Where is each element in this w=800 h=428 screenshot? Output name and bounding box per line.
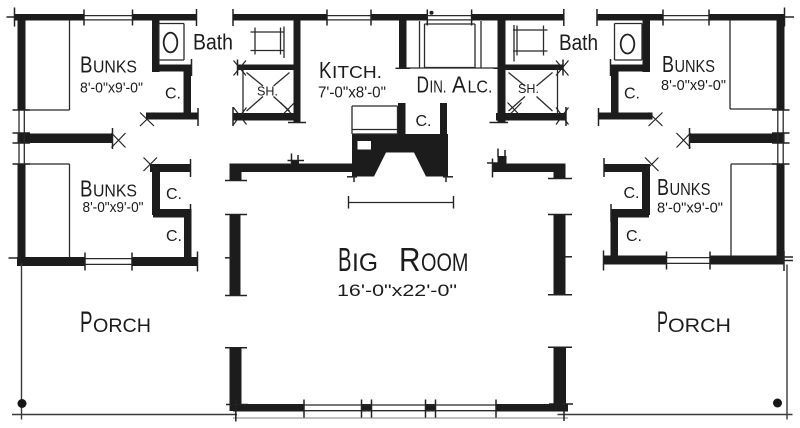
svg-text:ORCH: ORCH <box>93 316 151 337</box>
svg-text:C.: C. <box>416 113 432 130</box>
svg-text:SH.: SH. <box>518 81 539 96</box>
svg-text:B: B <box>662 51 674 77</box>
svg-text:8'-0"x9'-0": 8'-0"x9'-0" <box>83 199 144 216</box>
svg-text:Bath: Bath <box>559 30 598 55</box>
svg-text:C.: C. <box>165 86 181 103</box>
svg-text:B: B <box>80 176 93 202</box>
svg-text:C.: C. <box>626 228 642 245</box>
svg-text:C.: C. <box>166 186 182 203</box>
svg-text:B: B <box>80 52 93 78</box>
svg-text:8'-0"x9'-0": 8'-0"x9'-0" <box>661 77 726 94</box>
svg-text:LC.: LC. <box>468 77 493 97</box>
svg-text:OOM: OOM <box>421 249 469 277</box>
svg-text:D: D <box>417 72 430 98</box>
svg-text:C.: C. <box>624 86 640 103</box>
svg-text:ITCH.: ITCH. <box>332 62 382 82</box>
svg-text:UNKS: UNKS <box>93 57 137 77</box>
svg-text:IG: IG <box>352 249 378 277</box>
svg-text:C.: C. <box>166 228 182 245</box>
svg-text:B: B <box>338 241 352 278</box>
svg-text:UNKS: UNKS <box>93 181 137 201</box>
svg-text:UNKS: UNKS <box>675 56 716 76</box>
svg-text:P: P <box>657 306 668 339</box>
svg-text:IN.: IN. <box>430 77 447 97</box>
svg-text:ORCH: ORCH <box>668 316 731 337</box>
svg-text:K: K <box>319 57 332 83</box>
svg-text:P: P <box>80 306 93 339</box>
svg-text:16'-0"x22'-0": 16'-0"x22'-0" <box>337 281 457 300</box>
svg-text:UNKS: UNKS <box>670 179 711 199</box>
svg-text:A: A <box>452 72 467 98</box>
svg-text:8'-0"x9'-0": 8'-0"x9'-0" <box>80 80 143 97</box>
svg-text:R: R <box>399 241 421 278</box>
svg-text:Bath: Bath <box>193 30 233 55</box>
svg-text:7'-0"x8'-0": 7'-0"x8'-0" <box>318 85 386 102</box>
svg-text:C.: C. <box>624 185 640 202</box>
svg-text:B: B <box>657 174 669 200</box>
svg-text:8'-0"x9'-0": 8'-0"x9'-0" <box>657 200 723 217</box>
svg-text:SH.: SH. <box>257 84 278 99</box>
